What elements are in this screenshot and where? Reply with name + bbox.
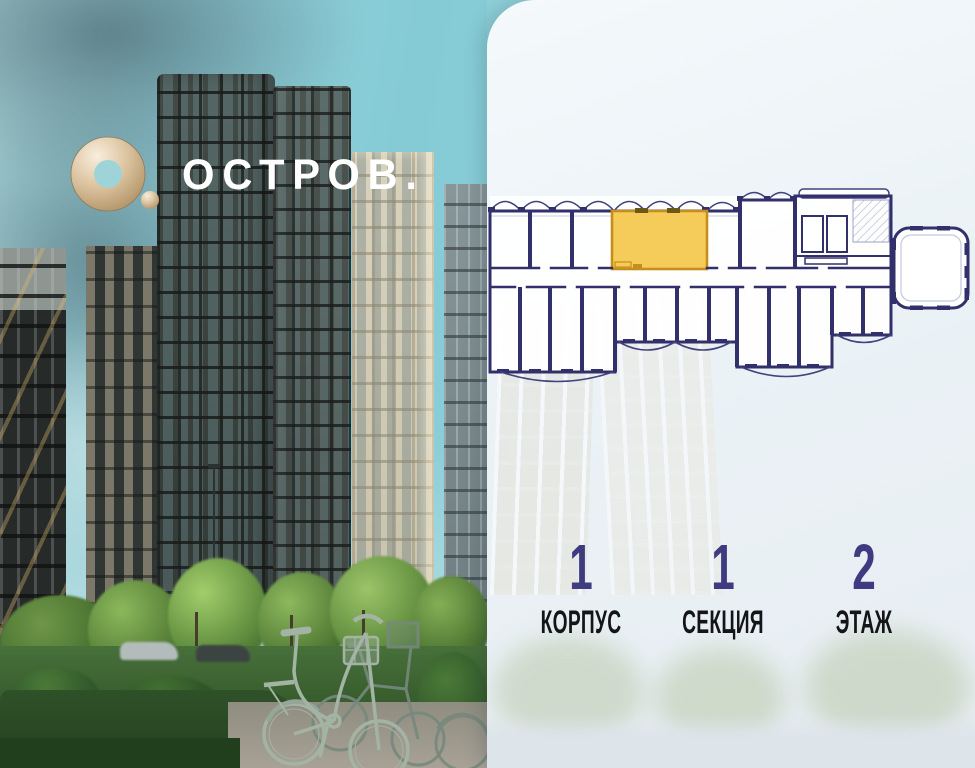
stat-building-label: КОРПУС — [533, 604, 629, 641]
brand-logo[interactable]: ОСТРОВ. — [70, 136, 432, 214]
stat-floor-value: 2 — [811, 538, 917, 597]
unit-stats: 1 КОРПУС 1 СЕКЦИЯ 2 ЭТАЖ — [487, 538, 975, 648]
stat-section-label: СЕКЦИЯ — [675, 604, 771, 641]
hero-photo: ОСТРОВ. — [0, 0, 487, 768]
details-panel: 1 КОРПУС 1 СЕКЦИЯ 2 ЭТАЖ — [487, 0, 975, 768]
grass — [0, 738, 240, 768]
building-right-edge — [444, 184, 487, 624]
stat-building-value: 1 — [528, 538, 634, 597]
parked-car — [196, 645, 250, 662]
brand-wordmark: ОСТРОВ. — [182, 154, 425, 197]
stat-floor: 2 ЭТАЖ — [784, 538, 944, 641]
apartment-selector-screen: ОСТРОВ. — [0, 0, 975, 768]
stat-building: 1 КОРПУС — [501, 538, 661, 641]
stat-section: 1 СЕКЦИЯ — [643, 538, 803, 641]
building-cream-tower — [352, 152, 434, 619]
brand-o-icon — [70, 136, 162, 214]
stat-floor-label: ЭТАЖ — [816, 604, 912, 641]
floorplan — [487, 0, 975, 768]
bicycles-illustration — [248, 593, 487, 768]
stat-section-value: 1 — [670, 538, 776, 597]
parked-car — [120, 642, 178, 660]
selected-apartment[interactable] — [612, 211, 707, 269]
